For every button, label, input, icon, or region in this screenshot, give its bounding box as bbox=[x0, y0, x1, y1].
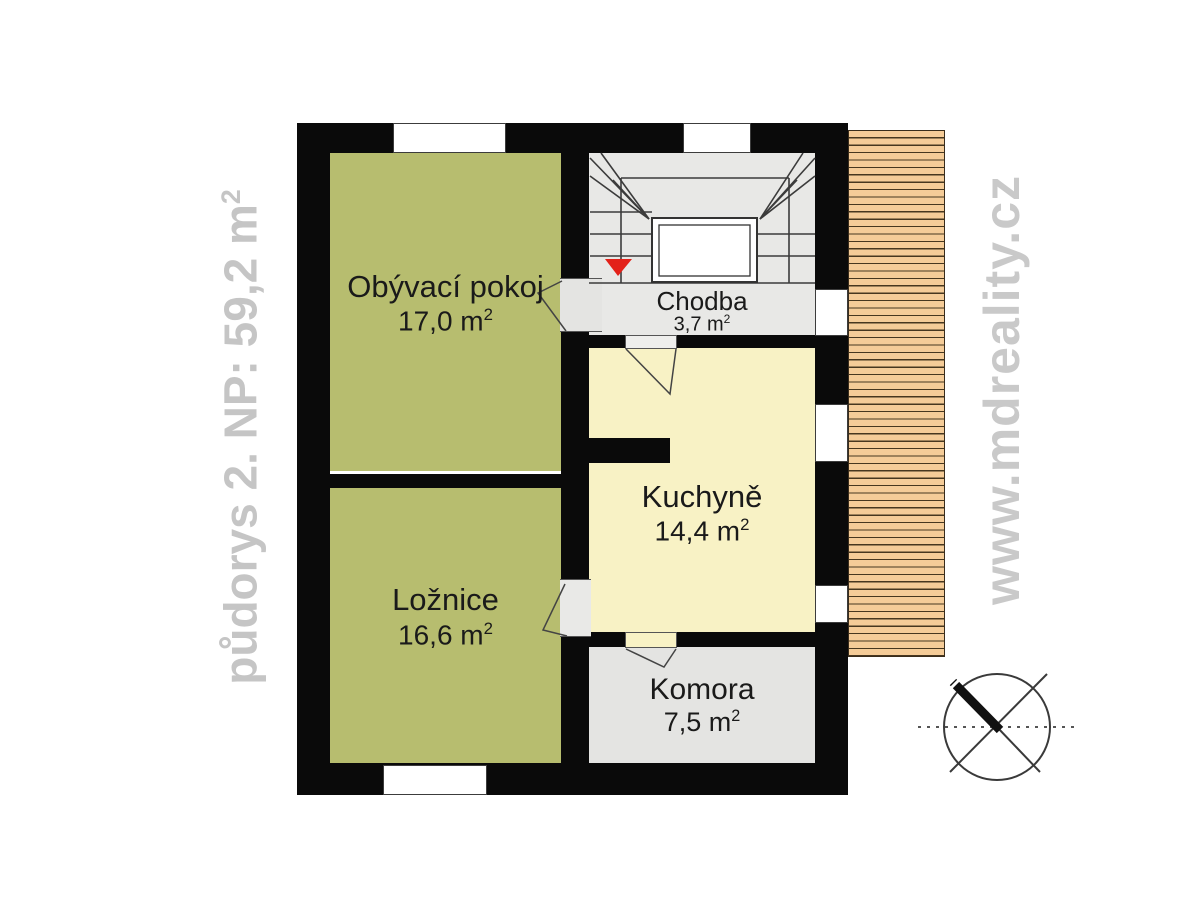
wall-kitchen-stub bbox=[561, 438, 670, 463]
door-opening-hall-kitchen bbox=[625, 335, 677, 349]
wall-kitchen-pantry bbox=[561, 632, 815, 647]
room-area-kitchen: 14,4 m2 bbox=[589, 515, 815, 547]
room-label-bedroom: Ložnice bbox=[330, 582, 561, 618]
window-top-stairs bbox=[683, 123, 751, 153]
wall-left bbox=[297, 123, 330, 795]
room-label-pantry: Komora bbox=[589, 673, 815, 707]
room-area-bedroom: 16,6 m2 bbox=[330, 619, 561, 651]
room-label-kitchen: Kuchyně bbox=[589, 479, 815, 515]
window-bottom-bedroom bbox=[383, 765, 487, 795]
wall-hall-kitchen bbox=[561, 335, 815, 348]
door-opening-kitchen-pantry bbox=[625, 632, 677, 648]
terrace-deck-hatch bbox=[848, 130, 945, 657]
window-right-kitchen-upper bbox=[815, 404, 848, 462]
room-area-hall: 3,7 m2 bbox=[589, 312, 815, 337]
door-opening-bedroom-kitchen bbox=[560, 579, 591, 637]
watermark-left: půdorys 2. NP: 59,2 m2 bbox=[196, 137, 266, 737]
room-label-living: Obývací pokoj bbox=[330, 269, 561, 305]
wall-living-bedroom bbox=[325, 474, 565, 488]
window-right-kitchen-lower bbox=[815, 585, 848, 623]
north-compass-icon bbox=[918, 674, 1080, 780]
room-area-living: 17,0 m2 bbox=[330, 305, 561, 337]
room-area-pantry: 7,5 m2 bbox=[589, 707, 815, 738]
watermark-right: www.mdreality.cz bbox=[967, 120, 1037, 660]
floorplan-image: půdorys 2. NP: 59,2 m2 www.mdreality.cz bbox=[0, 0, 1199, 899]
window-right-hall bbox=[815, 289, 848, 336]
window-top-living bbox=[393, 123, 506, 153]
